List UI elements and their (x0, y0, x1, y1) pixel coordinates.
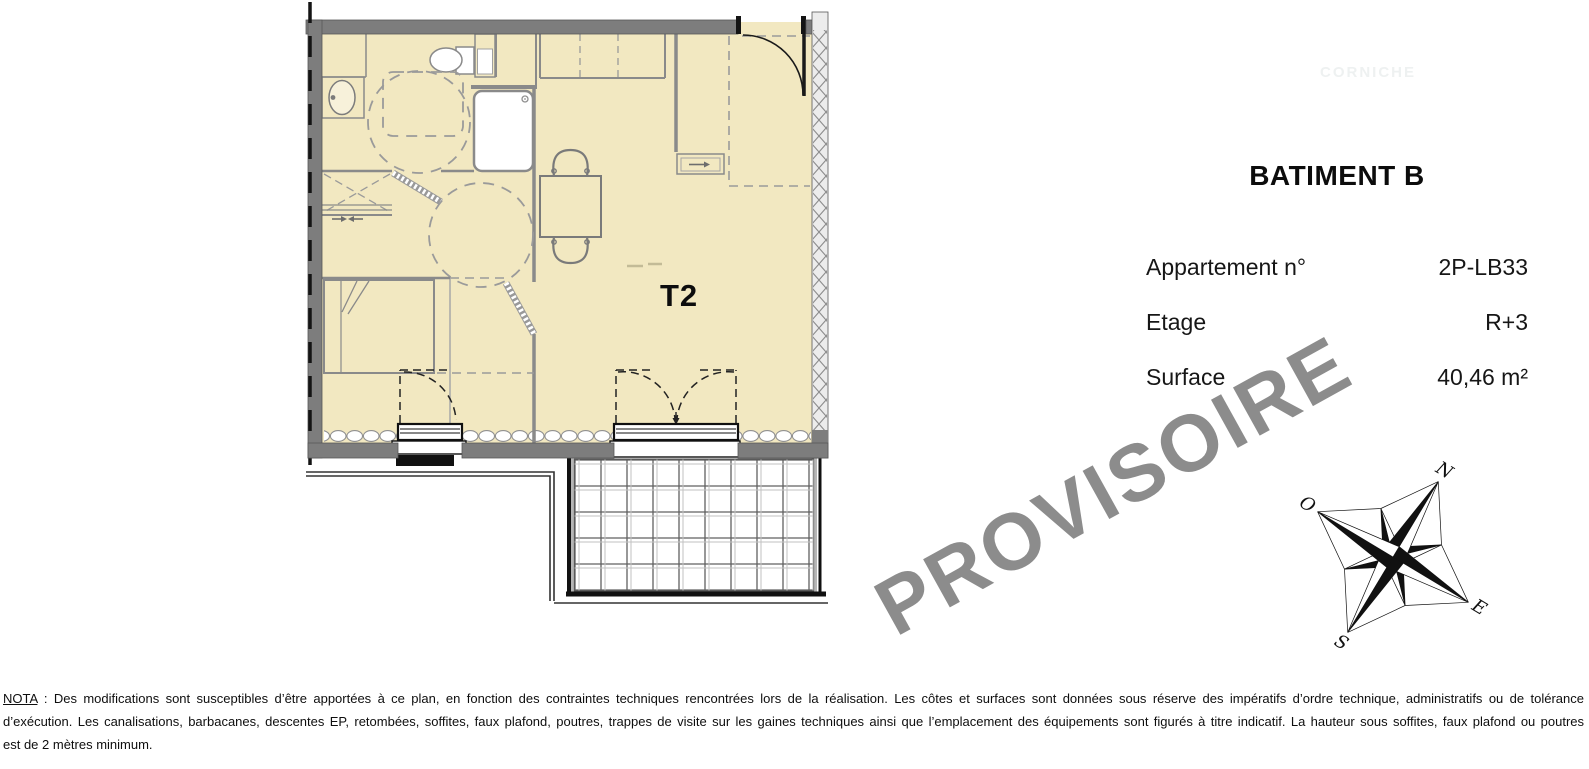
building-title: BATIMENT B (1146, 160, 1528, 192)
apartment-number-value: 2P-LB33 (1438, 254, 1528, 281)
unit-type-label: T2 (660, 278, 698, 314)
terrace (306, 457, 828, 603)
ghost-logo-text: CORNICHE (1320, 64, 1416, 81)
surface-value: 40,46 m² (1437, 364, 1528, 391)
apartment-number-label: Appartement n° (1146, 254, 1306, 281)
wall-top (306, 20, 738, 34)
compass-west-label: O (1296, 492, 1320, 518)
terrace-tiles (574, 459, 814, 591)
french-door-frame (614, 424, 738, 440)
balcony-rail (396, 455, 454, 466)
wall-right-hatch (813, 30, 827, 430)
floor-label: Etage (1146, 309, 1206, 336)
floor-plan-page: N O E S T2 CORNICHE BATIMENT B Apparteme… (0, 0, 1589, 764)
wall-bottom (462, 443, 614, 458)
toilet-bowl-icon (430, 48, 462, 72)
neighbor-terrace-line (306, 472, 554, 601)
french-door-sill (610, 441, 740, 457)
nota-paragraph: NOTA : Des modifications sont susceptibl… (3, 687, 1584, 756)
floor-value: R+3 (1485, 309, 1528, 336)
window-sill (392, 441, 466, 454)
compass-rose-icon: N O E S (1296, 457, 1491, 655)
info-row-apartment: Appartement n° 2P-LB33 (1146, 254, 1528, 281)
table-icon (540, 176, 601, 237)
door-jamb (801, 16, 806, 34)
wall-bottom (308, 443, 398, 458)
info-row-floor: Etage R+3 (1146, 309, 1528, 336)
compass-north-label: N (1431, 457, 1457, 484)
wall-bottom (738, 443, 828, 458)
nota-line-3: est de 2 mètres minimum. (3, 733, 1584, 756)
window-frame (398, 424, 462, 440)
door-jamb (736, 16, 741, 34)
nota-line-2: d’exécution. Les canalisations, barbacan… (3, 710, 1584, 733)
bedroom (324, 280, 434, 373)
nota-label: NOTA (3, 691, 37, 706)
nota-line-1: NOTA : Des modifications sont susceptibl… (3, 687, 1584, 710)
compass-south-label: S (1331, 630, 1352, 654)
faucet-icon (331, 95, 336, 100)
compass-east-label: E (1467, 595, 1490, 620)
shower-tray-icon (474, 91, 533, 171)
